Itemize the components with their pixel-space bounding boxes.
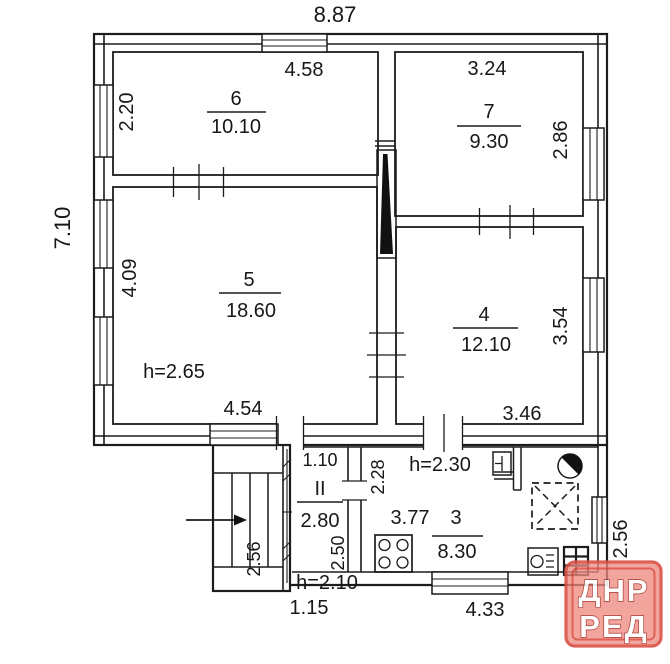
window-icon — [210, 424, 278, 445]
room4-number: 4 — [478, 304, 489, 326]
door-ticks — [174, 164, 534, 500]
room3-number: 3 — [450, 507, 461, 529]
room-6-outline — [113, 52, 378, 175]
room7-area: 9.30 — [470, 131, 509, 153]
room6-dim-left: 2.20 — [116, 93, 138, 132]
room5-dim-left: 4.09 — [119, 259, 141, 298]
walls — [94, 34, 607, 585]
vestibule-dim-right: 2.50 — [328, 535, 348, 570]
gas-stove-icon — [375, 535, 412, 572]
outer-wall-inner-line — [94, 34, 607, 445]
dim-overall-width: 8.87 — [314, 2, 357, 27]
entrance-arrow-head — [234, 515, 247, 526]
room3-ceiling-height: h=2.30 — [409, 454, 471, 476]
sink-icon — [558, 454, 582, 478]
window-icon — [432, 572, 508, 594]
room7-dim-top: 3.24 — [468, 58, 507, 80]
vestibule-ceiling-height: h=2.10 — [296, 572, 358, 594]
door-opening — [367, 333, 406, 377]
window-icon — [262, 34, 327, 52]
watermark: ДНР РЕД — [566, 562, 661, 646]
room7-number: 7 — [483, 101, 494, 123]
watermark-line1: ДНР — [578, 573, 649, 608]
watermark-line2: РЕД — [579, 609, 648, 644]
vestibule-dim-top: 1.10 — [302, 450, 337, 470]
room4-dim-bottom: 3.46 — [503, 403, 542, 425]
porch-dim-right: 2.56 — [244, 541, 264, 576]
gas-boiler-icon — [528, 548, 558, 575]
outer-wall — [94, 34, 607, 445]
window-icon — [94, 200, 113, 268]
room6-dim-top: 4.58 — [285, 59, 324, 81]
room3-dim-width: 3.77 — [391, 507, 430, 529]
windows — [94, 34, 607, 594]
annex-dim-right: 2.56 — [610, 520, 632, 559]
door-opening — [174, 164, 224, 200]
vestibule-number: II — [314, 478, 325, 500]
room5-number: 5 — [243, 269, 254, 291]
door-opening — [277, 419, 303, 448]
annex-dim-bottom-left: 1.15 — [290, 597, 329, 619]
room3-area: 8.30 — [438, 541, 477, 563]
vestibule-kitchen-wall — [348, 447, 361, 572]
shower-tray-icon — [532, 483, 578, 529]
window-icon — [592, 497, 607, 543]
window-icon — [94, 85, 113, 157]
bathroom-stub-wall — [494, 447, 521, 490]
dim-overall-height: 7.10 — [50, 207, 75, 250]
room4-dim-right: 3.54 — [550, 307, 572, 346]
vestibule-area: 2.80 — [301, 510, 340, 532]
door-opening — [480, 205, 534, 239]
window-icon — [583, 128, 604, 200]
room5-area: 18.60 — [226, 300, 276, 322]
room6-number: 6 — [230, 88, 241, 110]
floor-plan: 8.87 7.10 2.20 4.58 6 10.10 3.24 7 9.30 … — [0, 0, 670, 664]
window-icon — [583, 278, 604, 352]
annex-dim-bottom-right: 4.33 — [466, 599, 505, 621]
flue-duct-icon — [380, 154, 393, 254]
room5-ceiling-height: h=2.65 — [143, 361, 205, 383]
door-opening — [424, 419, 462, 448]
door-opening — [342, 481, 367, 500]
room4-area: 12.10 — [461, 334, 511, 356]
room5-dim-bottom: 4.54 — [224, 398, 263, 420]
room3-dim-left: 2.28 — [368, 459, 388, 494]
room6-area: 10.10 — [211, 116, 261, 138]
room7-dim-right: 2.86 — [550, 121, 572, 160]
staircase — [186, 445, 292, 591]
scanned-floor-plan-page: 8.87 7.10 2.20 4.58 6 10.10 3.24 7 9.30 … — [0, 0, 670, 664]
window-icon — [94, 317, 113, 385]
labels: 8.87 7.10 2.20 4.58 6 10.10 3.24 7 9.30 … — [50, 2, 632, 621]
